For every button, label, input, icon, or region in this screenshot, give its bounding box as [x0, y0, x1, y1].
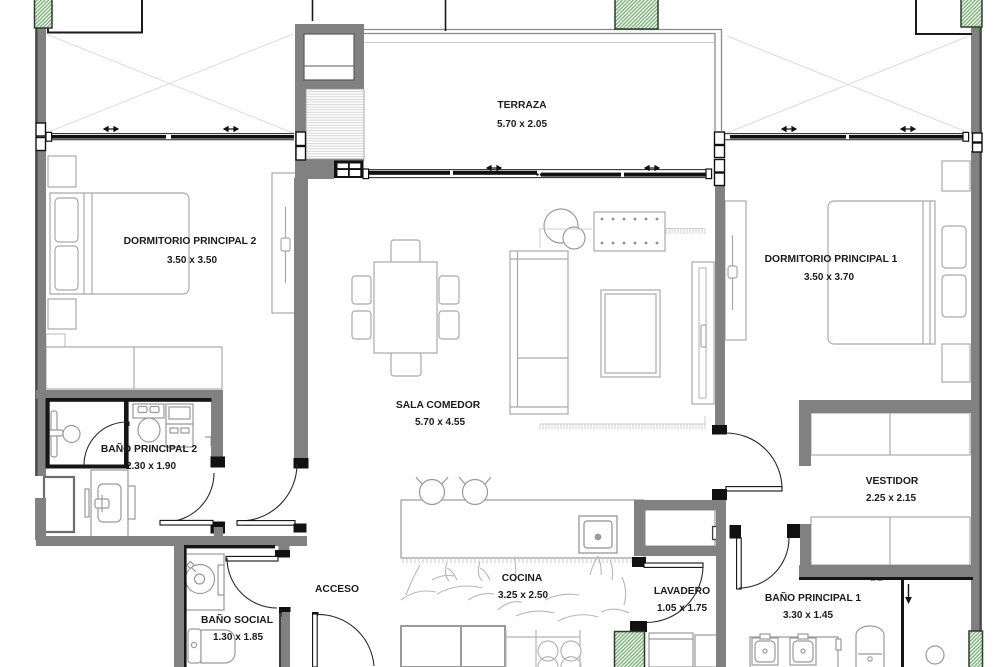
- svg-text:DORMITORIO PRINCIPAL 1: DORMITORIO PRINCIPAL 1: [765, 254, 898, 265]
- svg-text:1.30 x 1.85: 1.30 x 1.85: [213, 632, 263, 643]
- svg-text:3.50 x 3.50: 3.50 x 3.50: [167, 255, 217, 266]
- svg-text:1.05 x 1.75: 1.05 x 1.75: [657, 603, 707, 614]
- svg-text:COCINA: COCINA: [502, 573, 543, 584]
- svg-text:3.50 x 3.70: 3.50 x 3.70: [804, 272, 854, 283]
- svg-text:5.70 x 2.05: 5.70 x 2.05: [497, 119, 547, 130]
- svg-text:BAÑO PRINCIPAL 2: BAÑO PRINCIPAL 2: [101, 442, 198, 455]
- svg-text:DORMITORIO PRINCIPAL 2: DORMITORIO PRINCIPAL 2: [124, 236, 257, 247]
- svg-text:LAVADERO: LAVADERO: [654, 586, 710, 597]
- svg-text:3.25 x 2.50: 3.25 x 2.50: [498, 590, 548, 601]
- svg-text:3.30 x 1.45: 3.30 x 1.45: [783, 610, 833, 621]
- svg-text:2.30 x 1.90: 2.30 x 1.90: [126, 461, 176, 472]
- svg-text:TERRAZA: TERRAZA: [497, 100, 547, 111]
- svg-text:SALA COMEDOR: SALA COMEDOR: [396, 400, 481, 411]
- svg-text:BAÑO SOCIAL: BAÑO SOCIAL: [201, 613, 273, 626]
- svg-text:BAÑO PRINCIPAL 1: BAÑO PRINCIPAL 1: [765, 591, 862, 604]
- svg-text:5.70 x 4.55: 5.70 x 4.55: [415, 417, 465, 428]
- svg-text:VESTIDOR: VESTIDOR: [866, 476, 919, 487]
- svg-text:2.25 x 2.15: 2.25 x 2.15: [866, 493, 916, 504]
- svg-text:ACCESO: ACCESO: [315, 584, 359, 595]
